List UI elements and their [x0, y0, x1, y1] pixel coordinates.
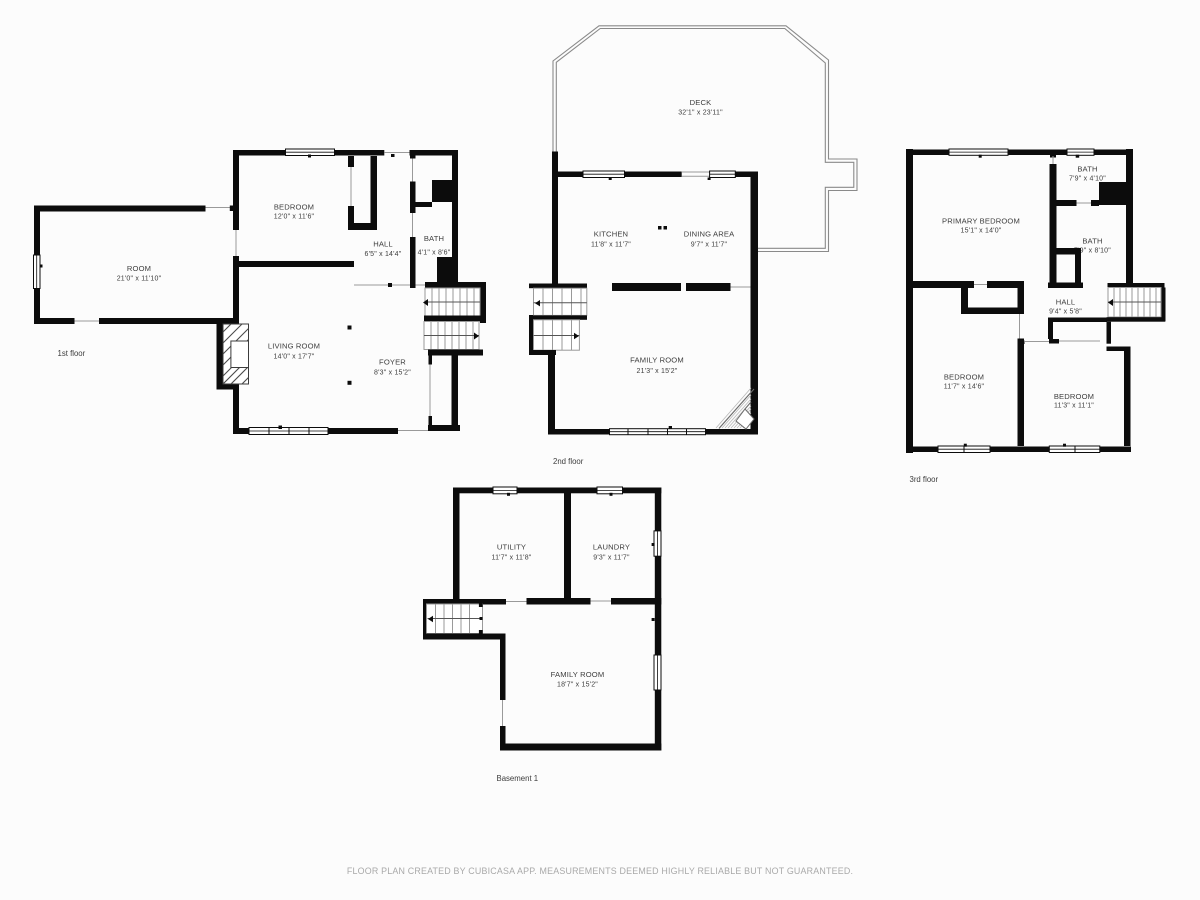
svg-text:BATH: BATH — [1077, 165, 1097, 174]
svg-text:11'7" x 11'8": 11'7" x 11'8" — [492, 555, 532, 562]
svg-text:HALL: HALL — [1056, 298, 1076, 307]
svg-text:BEDROOM: BEDROOM — [274, 203, 314, 212]
svg-text:11'3" x 11'1": 11'3" x 11'1" — [1054, 403, 1094, 410]
svg-text:DINING AREA: DINING AREA — [684, 230, 735, 239]
svg-text:11'8" x 11'7": 11'8" x 11'7" — [591, 242, 631, 249]
svg-text:6'5" x 14'4": 6'5" x 14'4" — [365, 251, 402, 258]
svg-text:LAUNDRY: LAUNDRY — [593, 543, 630, 552]
svg-text:9'4" x 5'8": 9'4" x 5'8" — [1049, 309, 1082, 316]
svg-text:3rd floor: 3rd floor — [910, 475, 939, 484]
svg-text:HALL: HALL — [373, 240, 393, 249]
svg-text:FAMILY ROOM: FAMILY ROOM — [551, 670, 605, 679]
svg-text:LIVING ROOM: LIVING ROOM — [268, 342, 320, 351]
svg-text:BEDROOM: BEDROOM — [944, 373, 984, 382]
svg-text:DECK: DECK — [690, 98, 712, 107]
svg-text:BEDROOM: BEDROOM — [1054, 392, 1094, 401]
svg-text:9'3" x 11'7": 9'3" x 11'7" — [593, 555, 630, 562]
svg-text:2nd floor: 2nd floor — [553, 457, 584, 466]
svg-text:KITCHEN: KITCHEN — [594, 230, 628, 239]
svg-text:1st floor: 1st floor — [58, 349, 86, 358]
svg-text:4'1" x 8'6": 4'1" x 8'6" — [418, 250, 451, 257]
svg-text:21'0" x 11'10": 21'0" x 11'10" — [117, 276, 162, 283]
svg-text:BATH: BATH — [424, 234, 444, 243]
svg-text:ROOM: ROOM — [127, 264, 151, 273]
svg-text:UTILITY: UTILITY — [497, 543, 526, 552]
svg-text:7'9" x 4'10": 7'9" x 4'10" — [1069, 176, 1106, 183]
svg-text:14'0" x 17'7": 14'0" x 17'7" — [274, 354, 315, 361]
svg-text:32'1" x 23'11": 32'1" x 23'11" — [678, 110, 723, 117]
svg-text:Basement 1: Basement 1 — [497, 774, 539, 783]
svg-text:11'7" x 14'6": 11'7" x 14'6" — [944, 384, 985, 391]
svg-text:18'7" x 15'2": 18'7" x 15'2" — [557, 682, 598, 689]
svg-text:FLOOR PLAN CREATED BY CUBICASA: FLOOR PLAN CREATED BY CUBICASA APP. MEAS… — [347, 866, 853, 876]
svg-text:FOYER: FOYER — [379, 358, 406, 367]
svg-text:12'0" x 11'6": 12'0" x 11'6" — [274, 214, 315, 221]
svg-text:FAMILY ROOM: FAMILY ROOM — [630, 356, 684, 365]
svg-text:BATH: BATH — [1082, 237, 1102, 246]
svg-text:9'7" x 11'7": 9'7" x 11'7" — [691, 242, 728, 249]
svg-text:8'3" x 15'2": 8'3" x 15'2" — [374, 370, 411, 377]
svg-text:15'1" x 14'0": 15'1" x 14'0" — [961, 228, 1002, 235]
svg-text:PRIMARY BEDROOM: PRIMARY BEDROOM — [942, 217, 1020, 226]
svg-text:21'3" x 15'2": 21'3" x 15'2" — [637, 368, 678, 375]
